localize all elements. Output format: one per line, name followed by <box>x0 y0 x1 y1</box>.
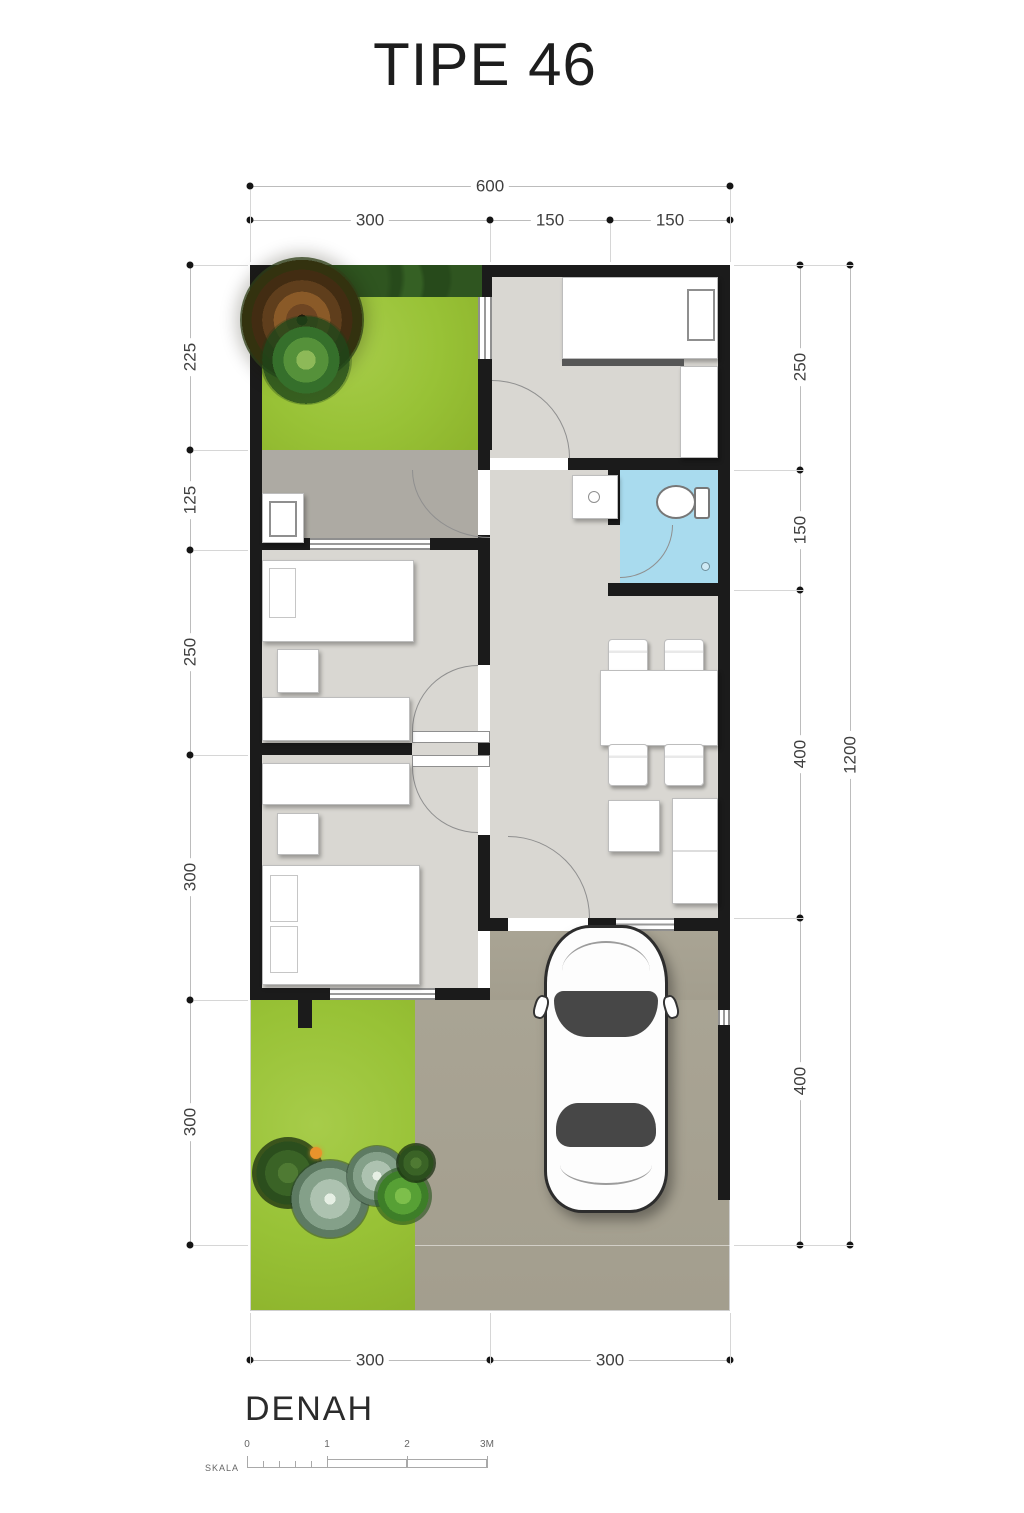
garden-fern <box>260 315 352 405</box>
wall-segment <box>478 743 490 755</box>
extension-line <box>194 550 248 551</box>
extension-line <box>734 1245 854 1246</box>
extension-line <box>730 190 731 262</box>
extension-line <box>734 590 804 591</box>
wall-segment <box>718 265 730 930</box>
bedroom2-door-leaf <box>412 755 490 767</box>
yard-flower <box>310 1147 322 1159</box>
dim-label: 300 <box>351 1352 389 1369</box>
wall-segment <box>250 743 412 755</box>
wall-segment <box>478 450 490 470</box>
wall-segment <box>478 835 490 918</box>
car-rear-window <box>556 1103 656 1147</box>
dining-chair <box>664 744 704 786</box>
car <box>544 925 668 1213</box>
window <box>718 1010 730 1025</box>
wall-segment <box>478 535 490 665</box>
scale-bar-box <box>327 1459 407 1468</box>
scale-bar-minor-tick <box>263 1461 264 1468</box>
kitchen-sink <box>687 289 715 341</box>
bedroom1-pillow <box>269 568 296 618</box>
dim-label: 150 <box>651 212 689 229</box>
bedroom2-pillow <box>270 875 298 922</box>
floor-drain <box>701 562 710 571</box>
scale-bar-box <box>407 1459 487 1468</box>
wall-segment <box>250 988 330 1000</box>
dim-label: 300 <box>351 212 389 229</box>
yard-bush <box>396 1143 436 1183</box>
wall-segment <box>250 265 262 1000</box>
extension-line <box>610 224 611 262</box>
wall-segment <box>478 918 508 931</box>
bedroom1-dresser <box>262 697 410 741</box>
dim-tick-dot <box>487 217 494 224</box>
window <box>310 538 430 550</box>
dining-table <box>600 670 718 746</box>
wall-segment <box>430 538 490 550</box>
bedroom1-nightstand <box>277 649 319 693</box>
wall-segment <box>608 583 730 596</box>
scale-bar-tick <box>487 1456 488 1468</box>
scale-tick-label: 1 <box>324 1440 330 1450</box>
dim-label: 300 <box>182 1103 199 1141</box>
service-sink <box>269 501 297 537</box>
extension-line <box>250 190 251 262</box>
extension-line <box>490 1313 491 1365</box>
toilet-tank <box>694 487 710 519</box>
kitchen-counter-side <box>680 366 718 458</box>
window <box>478 297 492 359</box>
dim-tick-dot <box>187 547 194 554</box>
bedroom2-nightstand <box>277 813 319 855</box>
dim-tick-dot <box>187 262 194 269</box>
extension-line <box>194 450 248 451</box>
front-yard-bushes <box>250 1125 440 1235</box>
extension-line <box>734 470 804 471</box>
car-windshield <box>554 991 658 1037</box>
dim-label-top-total: 600 <box>471 178 509 195</box>
scale-bar-minor-tick <box>279 1461 280 1468</box>
dim-label: 400 <box>792 1062 809 1100</box>
dim-tick-dot <box>187 1242 194 1249</box>
wall-segment <box>568 458 730 470</box>
dim-tick-dot <box>187 752 194 759</box>
dim-label: 250 <box>792 348 809 386</box>
wall-segment <box>718 1025 730 1200</box>
bedroom2-pillow <box>270 926 298 973</box>
extension-line <box>194 265 248 266</box>
sofa <box>672 798 718 904</box>
kitchen-counter-shadow <box>562 359 684 366</box>
side-table <box>608 800 660 852</box>
extension-line <box>250 1313 251 1365</box>
scale-tick-label: 0 <box>244 1440 250 1450</box>
scale-bar-tick <box>247 1456 248 1468</box>
bedroom2-dresser <box>262 763 410 805</box>
dim-tick-dot <box>247 183 254 190</box>
dim-label: 300 <box>182 858 199 896</box>
dim-tick-dot <box>187 447 194 454</box>
dining-chair <box>608 744 648 786</box>
wall-segment <box>674 918 730 931</box>
dim-tick-dot <box>727 183 734 190</box>
dim-tick-dot <box>607 217 614 224</box>
plot-line-bottom <box>250 1310 730 1311</box>
wall-segment <box>718 930 730 1010</box>
dim-label: 400 <box>792 735 809 773</box>
scale-tick-label: 2 <box>404 1440 410 1450</box>
extension-line <box>734 918 804 919</box>
window <box>330 988 435 1000</box>
extension-line <box>490 224 491 262</box>
dim-label-right-total: 1200 <box>842 731 859 779</box>
extension-line <box>194 1245 248 1246</box>
plan-caption: DENAH <box>245 1390 374 1429</box>
scale-bar-minor-tick <box>295 1461 296 1468</box>
bedroom1-door-leaf <box>412 731 490 743</box>
plot-line-right <box>729 1200 730 1311</box>
toilet-bowl <box>656 485 696 519</box>
scale-bar-label: SKALA <box>205 1463 239 1473</box>
dim-label: 225 <box>182 338 199 376</box>
fence-stub <box>298 1000 312 1028</box>
extension-line <box>734 265 854 266</box>
dim-label: 125 <box>182 481 199 519</box>
page-title: TIPE 46 <box>373 30 597 99</box>
scale-bar-minor-tick <box>311 1461 312 1468</box>
extension-line <box>194 755 248 756</box>
scale-tick-label: 3M <box>480 1440 494 1450</box>
dim-label: 250 <box>182 633 199 671</box>
wall-segment <box>478 359 492 450</box>
plot-line-setback <box>415 1245 730 1246</box>
dim-label: 150 <box>792 511 809 549</box>
dim-tick-dot <box>187 997 194 1004</box>
dim-label: 150 <box>531 212 569 229</box>
floor-plan <box>250 265 730 1311</box>
extension-line <box>194 1000 248 1001</box>
wall-segment <box>435 988 490 1000</box>
dim-label: 300 <box>591 1352 629 1369</box>
basin-faucet <box>588 491 600 503</box>
extension-line <box>730 1313 731 1365</box>
floor-plan-sheet: TIPE 46 <box>0 0 1024 1513</box>
